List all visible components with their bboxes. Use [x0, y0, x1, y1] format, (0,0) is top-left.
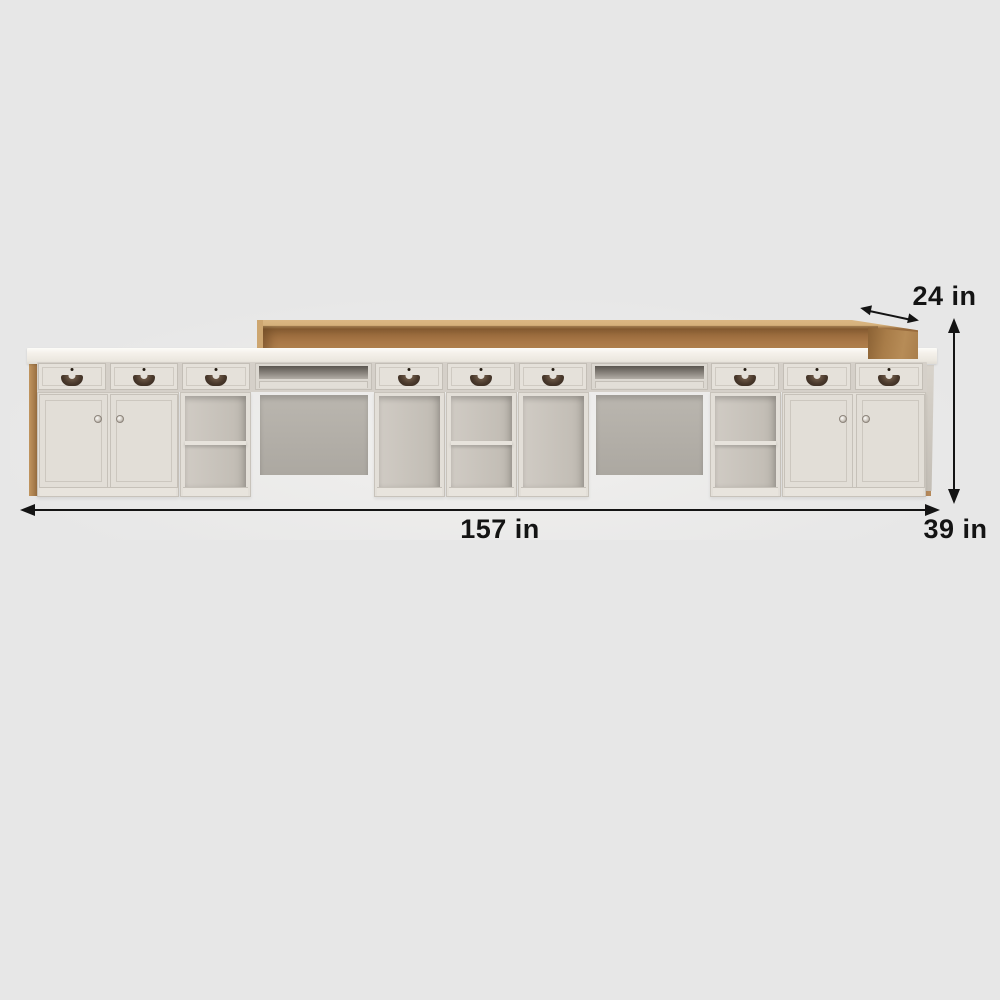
- door-knob-icon: [862, 415, 870, 423]
- keyhole-icon: [71, 368, 74, 371]
- middle-shelf: [715, 441, 776, 445]
- plinth: [449, 487, 514, 496]
- keyhole-icon: [215, 368, 218, 371]
- product-dimension-image: 157 in 39 in 24 in: [0, 0, 1000, 1000]
- drawer: [855, 363, 923, 390]
- drawer-handle-icon: [806, 375, 828, 386]
- open-compartment: [374, 392, 445, 497]
- plinth: [377, 487, 442, 496]
- door-cabinet-right: [782, 392, 926, 497]
- arrowhead-down-icon: [948, 489, 960, 504]
- door-knob-icon: [116, 415, 124, 423]
- drawer: [182, 363, 250, 390]
- drawer: [519, 363, 587, 390]
- dimension-line: [33, 509, 927, 511]
- width-dimension-label: 157 in: [430, 515, 570, 545]
- drawer: [783, 363, 851, 390]
- middle-shelf: [451, 441, 512, 445]
- plinth: [785, 487, 923, 496]
- arrowhead-right-icon: [907, 313, 920, 325]
- keyhole-icon: [408, 368, 411, 371]
- tray-opening: [595, 366, 704, 379]
- drawer: [447, 363, 515, 390]
- open-shelf-unit: [710, 392, 781, 497]
- drawer: [38, 363, 106, 390]
- keyhole-icon: [744, 368, 747, 371]
- drawer-handle-icon: [470, 375, 492, 386]
- open-shelf-unit: [446, 392, 517, 497]
- left-wood-side-panel: [29, 362, 37, 496]
- drawer-handle-icon: [878, 375, 900, 386]
- drawer-handle-icon: [61, 375, 83, 386]
- keyhole-icon: [816, 368, 819, 371]
- keyhole-icon: [143, 368, 146, 371]
- cabinet-door: [39, 394, 108, 488]
- knee-space: [590, 392, 709, 497]
- arrowhead-up-icon: [948, 318, 960, 333]
- drawer-handle-icon: [398, 375, 420, 386]
- modesty-panel: [596, 395, 703, 475]
- depth-dimension-label: 24 in: [902, 282, 987, 312]
- door-knob-icon: [839, 415, 847, 423]
- door-cabinet-left: [37, 392, 179, 497]
- keyboard-tray-slot: [591, 363, 708, 390]
- open-compartment: [518, 392, 589, 497]
- cabinet-door: [856, 394, 925, 488]
- drawer: [375, 363, 443, 390]
- plinth: [40, 487, 176, 496]
- height-dimension-label: 39 in: [908, 515, 1000, 545]
- open-shelf-unit: [180, 392, 251, 497]
- drawer-handle-icon: [542, 375, 564, 386]
- drawer-handle-icon: [734, 375, 756, 386]
- tray-opening: [259, 366, 368, 379]
- middle-shelf: [185, 441, 246, 445]
- drawer-handle-icon: [205, 375, 227, 386]
- cabinet-door: [110, 394, 178, 488]
- arrowhead-left-icon: [20, 504, 35, 516]
- arrowhead-left-icon: [859, 303, 872, 315]
- knee-space: [254, 392, 374, 497]
- keyhole-icon: [480, 368, 483, 371]
- plinth: [183, 487, 248, 496]
- cabinet-door: [784, 394, 853, 488]
- tray-rail: [595, 381, 704, 388]
- plinth: [713, 487, 778, 496]
- door-knob-icon: [94, 415, 102, 423]
- drawer: [711, 363, 779, 390]
- dimension-line: [953, 331, 955, 491]
- compartment-interior: [379, 396, 440, 487]
- keyboard-tray-slot: [255, 363, 372, 390]
- compartment-interior: [523, 396, 584, 487]
- plinth: [521, 487, 586, 496]
- keyhole-icon: [888, 368, 891, 371]
- keyhole-icon: [552, 368, 555, 371]
- drawer-row: [37, 362, 927, 392]
- tray-rail: [259, 381, 368, 388]
- height-dimension-arrow-icon: [946, 318, 962, 504]
- drawer: [110, 363, 178, 390]
- modesty-panel: [260, 395, 368, 475]
- drawer-handle-icon: [133, 375, 155, 386]
